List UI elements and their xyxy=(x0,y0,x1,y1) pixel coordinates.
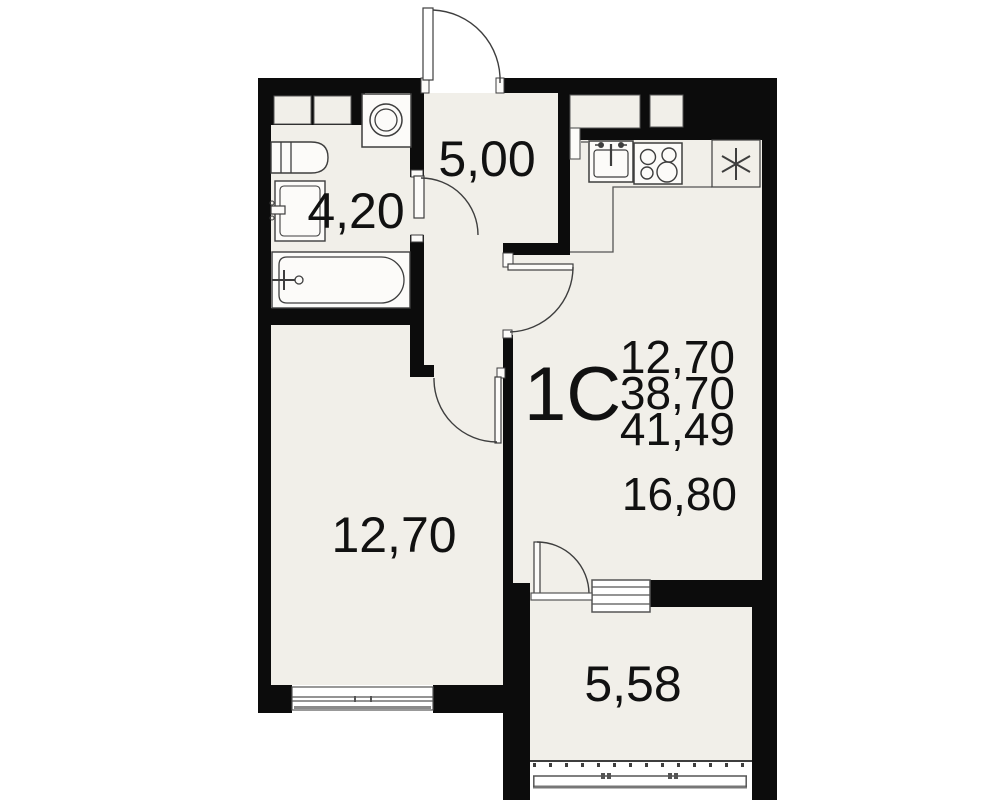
wall-living-partition-top xyxy=(503,243,513,253)
fridge-icon xyxy=(712,140,760,187)
balcony-door-sill xyxy=(531,593,592,600)
wall-right xyxy=(762,78,777,588)
bathroom-door-leaf xyxy=(414,176,424,218)
kitchen-vent-shaft-1 xyxy=(570,95,640,128)
balcony-door-leaf xyxy=(534,542,540,594)
kitchen-vent-shaft-2 xyxy=(650,95,683,127)
bathroom-vent-shaft-1 xyxy=(274,96,311,124)
sink-counter-icon xyxy=(271,142,328,173)
kitchen-door-leaf xyxy=(508,264,573,270)
washing-machine-icon xyxy=(362,94,411,147)
bathroom-door-jamb-bottom xyxy=(411,235,423,242)
wall-left xyxy=(258,78,271,713)
wall-balcony-left xyxy=(503,583,530,800)
balcony-window xyxy=(592,580,650,612)
apartment-type-label: 1С xyxy=(524,352,621,437)
bedroom-window xyxy=(292,687,433,710)
wall-bedroom-door-stub xyxy=(410,365,434,377)
bathtub-icon xyxy=(272,252,410,308)
floor-plan-page: 4,20 5,00 12,70 5,58 1С 12,70 38,70 41,4… xyxy=(0,0,1000,800)
bathroom-area-label: 4,20 xyxy=(307,183,404,239)
wall-top-right xyxy=(500,78,777,93)
entrance-door-leaf xyxy=(423,8,433,80)
wall-bottom-left-of-window xyxy=(258,685,292,713)
wall-below-bathroom xyxy=(258,308,424,325)
bedroom-area-label: 12,70 xyxy=(331,507,456,563)
wall-top-left xyxy=(258,78,424,93)
floor-plan: 4,20 5,00 12,70 5,58 1С 12,70 38,70 41,4… xyxy=(0,0,1000,800)
kitchen-sink-icon xyxy=(589,141,633,182)
bathroom-vent-shaft-2 xyxy=(314,96,351,124)
kitchen-living-area-label: 16,80 xyxy=(622,468,737,520)
bedroom-door-leaf xyxy=(495,377,501,443)
hallway-area-label: 5,00 xyxy=(438,131,535,187)
wall-bottom-right-of-window xyxy=(433,685,503,713)
wall-balcony-partition xyxy=(650,580,762,607)
wall-balcony-right xyxy=(752,580,777,800)
wall-bathroom-hall-lower xyxy=(410,235,424,377)
balcony-area-label: 5,58 xyxy=(584,656,681,712)
kitchen-door-jamb-bottom xyxy=(503,330,512,338)
wall-top-right-corner-block xyxy=(712,93,777,140)
stove-icon xyxy=(634,143,682,184)
wall-bathroom-hall-upper xyxy=(410,93,424,177)
area-stack-line3: 41,49 xyxy=(620,403,735,455)
bedroom-floor xyxy=(271,325,503,685)
